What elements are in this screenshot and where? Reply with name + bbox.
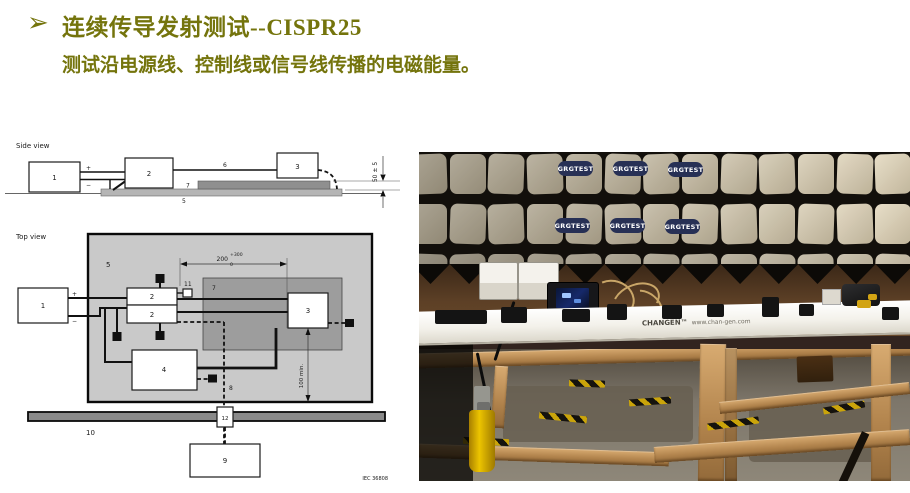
absorber-logo: GRGTEST — [558, 161, 593, 176]
yellow-connector — [868, 294, 877, 300]
absorber-logo-text: GRGTEST — [558, 165, 594, 173]
bench-url: www.chan-gen.com — [692, 318, 751, 326]
cable-clamp — [762, 297, 779, 317]
slide-page: ➢ 连续传导发射测试--CISPR25 测试沿电源线、控制线或信号线传播的电磁能… — [0, 0, 910, 493]
cable-clamp — [662, 305, 682, 319]
absorber-tile — [759, 153, 796, 194]
slide-subtitle: 测试沿电源线、控制线或信号线传播的电磁能量。 — [62, 50, 480, 77]
under-table-shadow — [419, 342, 473, 481]
absorber-tile — [875, 204, 910, 244]
absorber-logo: GRGTEST — [665, 219, 700, 234]
load-number: 4 — [162, 366, 167, 374]
plane-number-side: 7 — [186, 183, 190, 190]
side-view-label: Side view — [16, 142, 50, 150]
absorber-tile — [526, 153, 563, 194]
arrow-down-icon — [380, 175, 385, 182]
connector-square — [183, 289, 192, 297]
yellow-connector — [857, 300, 871, 308]
absorber-logo-text: GRGTEST — [555, 222, 591, 230]
minus-sign-side: − — [86, 182, 91, 189]
width-tol-plus: +300 — [230, 252, 243, 258]
cispr25-setup-diagram: Side view 5 7 1 + − 2 6 3 — [0, 130, 410, 493]
table-number-top: 5 — [106, 261, 110, 269]
wood-post-center-2 — [725, 348, 737, 481]
slide-title: 连续传导发射测试--CISPR25 — [62, 8, 362, 42]
wood-post-right — [871, 344, 891, 481]
bench-brand: CHANGEN™ — [642, 318, 688, 327]
absorber-logo-text: GRGTEST — [665, 223, 701, 231]
bench-number: 5 — [182, 198, 186, 205]
absorber-logo-text: GRGTEST — [613, 165, 649, 173]
cable-clamp — [799, 304, 814, 316]
clearance-dim-text: 100 min. — [299, 364, 305, 389]
dut-number-top: 3 — [306, 307, 310, 315]
dut-number-side: 3 — [295, 163, 299, 171]
head-unit-screen — [556, 288, 589, 308]
absorber-logo: GRGTEST — [610, 218, 645, 233]
supply-number-side: 1 — [52, 174, 56, 182]
plus-sign-top: + — [72, 291, 77, 298]
absorber-logo: GRGTEST — [668, 162, 703, 177]
width-tol-minus: 0 — [230, 262, 233, 268]
absorber-tile — [488, 153, 525, 194]
ferrite-clamp-icon — [156, 331, 165, 340]
plane-number-top: 7 — [212, 285, 216, 292]
absorber-logo: GRGTEST — [613, 161, 648, 176]
storage-box — [797, 355, 834, 382]
cable-clamp — [501, 307, 527, 323]
absorber-logo: GRGTEST — [555, 218, 590, 233]
floor-shadow-patch — [503, 386, 693, 442]
bench-brand-label: CHANGEN™www.chan-gen.com — [642, 317, 751, 327]
connector-number: 11 — [184, 281, 192, 288]
screen-glyph — [562, 293, 571, 298]
ferrite-clamp-icon — [345, 319, 354, 327]
supply-number-top: 1 — [41, 302, 45, 310]
absorber-tile — [419, 204, 447, 244]
top-view: Top view 5 7 200 +300 0 1 + − — [15, 233, 385, 477]
top-view-label: Top view — [15, 233, 46, 241]
emc-chamber-photo: GRGTEST GRGTEST GRGTEST GRGTEST GRGTEST … — [419, 152, 910, 481]
absorber-tile — [488, 203, 525, 244]
absorber-tile — [798, 154, 834, 194]
absorber-tile — [720, 203, 757, 244]
screen-glyph — [574, 299, 581, 303]
cable-clamp — [882, 307, 899, 320]
absorber-tile — [419, 153, 448, 194]
ferrite-clamp-icon — [113, 332, 122, 341]
lisn-a-number: 2 — [150, 293, 154, 301]
absorber-tile — [449, 203, 486, 244]
ground-strap-bar — [28, 412, 385, 421]
minus-sign-top: − — [72, 318, 77, 325]
lisn-b-number: 2 — [150, 311, 154, 319]
cable-clamp — [562, 309, 590, 322]
probe-number: 8 — [229, 385, 233, 392]
plus-sign-side: + — [86, 165, 91, 172]
feedthrough-number: 12 — [222, 416, 229, 422]
accessory-box — [822, 289, 841, 305]
fire-extinguisher — [469, 410, 495, 472]
absorber-tile — [836, 153, 873, 194]
side-view: Side view 5 7 1 + − 2 6 3 — [5, 142, 400, 208]
cable-clamp — [435, 310, 487, 324]
figure-reference: IEC 36808 — [362, 476, 388, 482]
absorber-tile — [836, 203, 873, 244]
absorber-logo-text: GRGTEST — [610, 222, 646, 230]
absorber-tile — [450, 154, 486, 194]
ferrite-clamp-icon — [156, 274, 165, 283]
absorber-logo-text: GRGTEST — [668, 166, 704, 174]
ferrite-clamp-icon — [208, 375, 217, 383]
lisn-unit-left — [479, 262, 518, 300]
hazard-tape — [569, 379, 605, 387]
height-dim-text: 50 ± 5 — [372, 162, 379, 182]
ground-plane-side — [198, 181, 330, 189]
cable-clamp — [707, 304, 724, 317]
cable-clamp — [607, 304, 627, 320]
absorber-tile — [797, 203, 834, 244]
absorber-tile — [720, 153, 757, 194]
bullet-arrow-icon: ➢ — [27, 8, 49, 38]
receiver-number: 9 — [223, 457, 227, 465]
lisn-number-side: 2 — [147, 170, 151, 178]
harness-number-side: 6 — [223, 162, 227, 169]
strap-number: 10 — [86, 429, 95, 437]
absorber-tile — [759, 204, 795, 244]
width-dim-text: 200 — [217, 256, 229, 263]
test-bench — [101, 189, 342, 196]
absorber-tile — [875, 153, 910, 194]
